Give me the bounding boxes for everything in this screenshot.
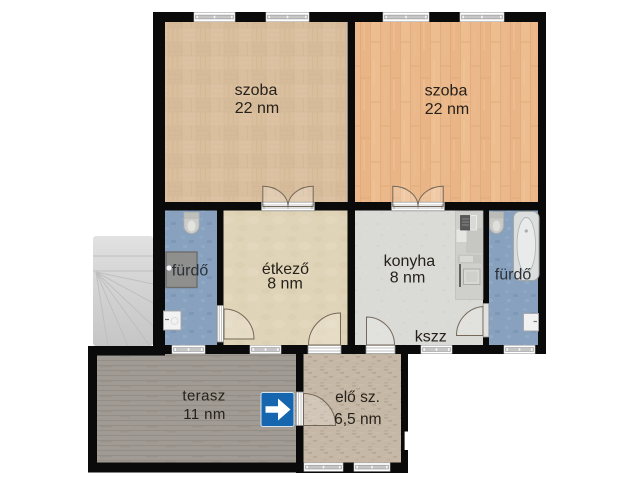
svg-text:elő sz.: elő sz. bbox=[335, 389, 380, 406]
svg-text:terasz: terasz bbox=[182, 387, 225, 404]
svg-text:6,5 nm: 6,5 nm bbox=[334, 411, 381, 428]
svg-text:8 nm: 8 nm bbox=[390, 270, 426, 287]
svg-text:fürdő: fürdő bbox=[495, 266, 532, 283]
svg-text:szoba: szoba bbox=[235, 82, 278, 99]
svg-text:fürdő: fürdő bbox=[172, 262, 209, 279]
svg-text:konyha: konyha bbox=[384, 253, 436, 270]
svg-text:szoba: szoba bbox=[425, 83, 468, 100]
svg-text:kszz: kszz bbox=[415, 329, 447, 346]
svg-text:22 nm: 22 nm bbox=[235, 100, 279, 117]
svg-text:11 nm: 11 nm bbox=[183, 406, 226, 423]
svg-text:8 nm: 8 nm bbox=[267, 276, 303, 293]
svg-text:22 nm: 22 nm bbox=[425, 101, 469, 118]
